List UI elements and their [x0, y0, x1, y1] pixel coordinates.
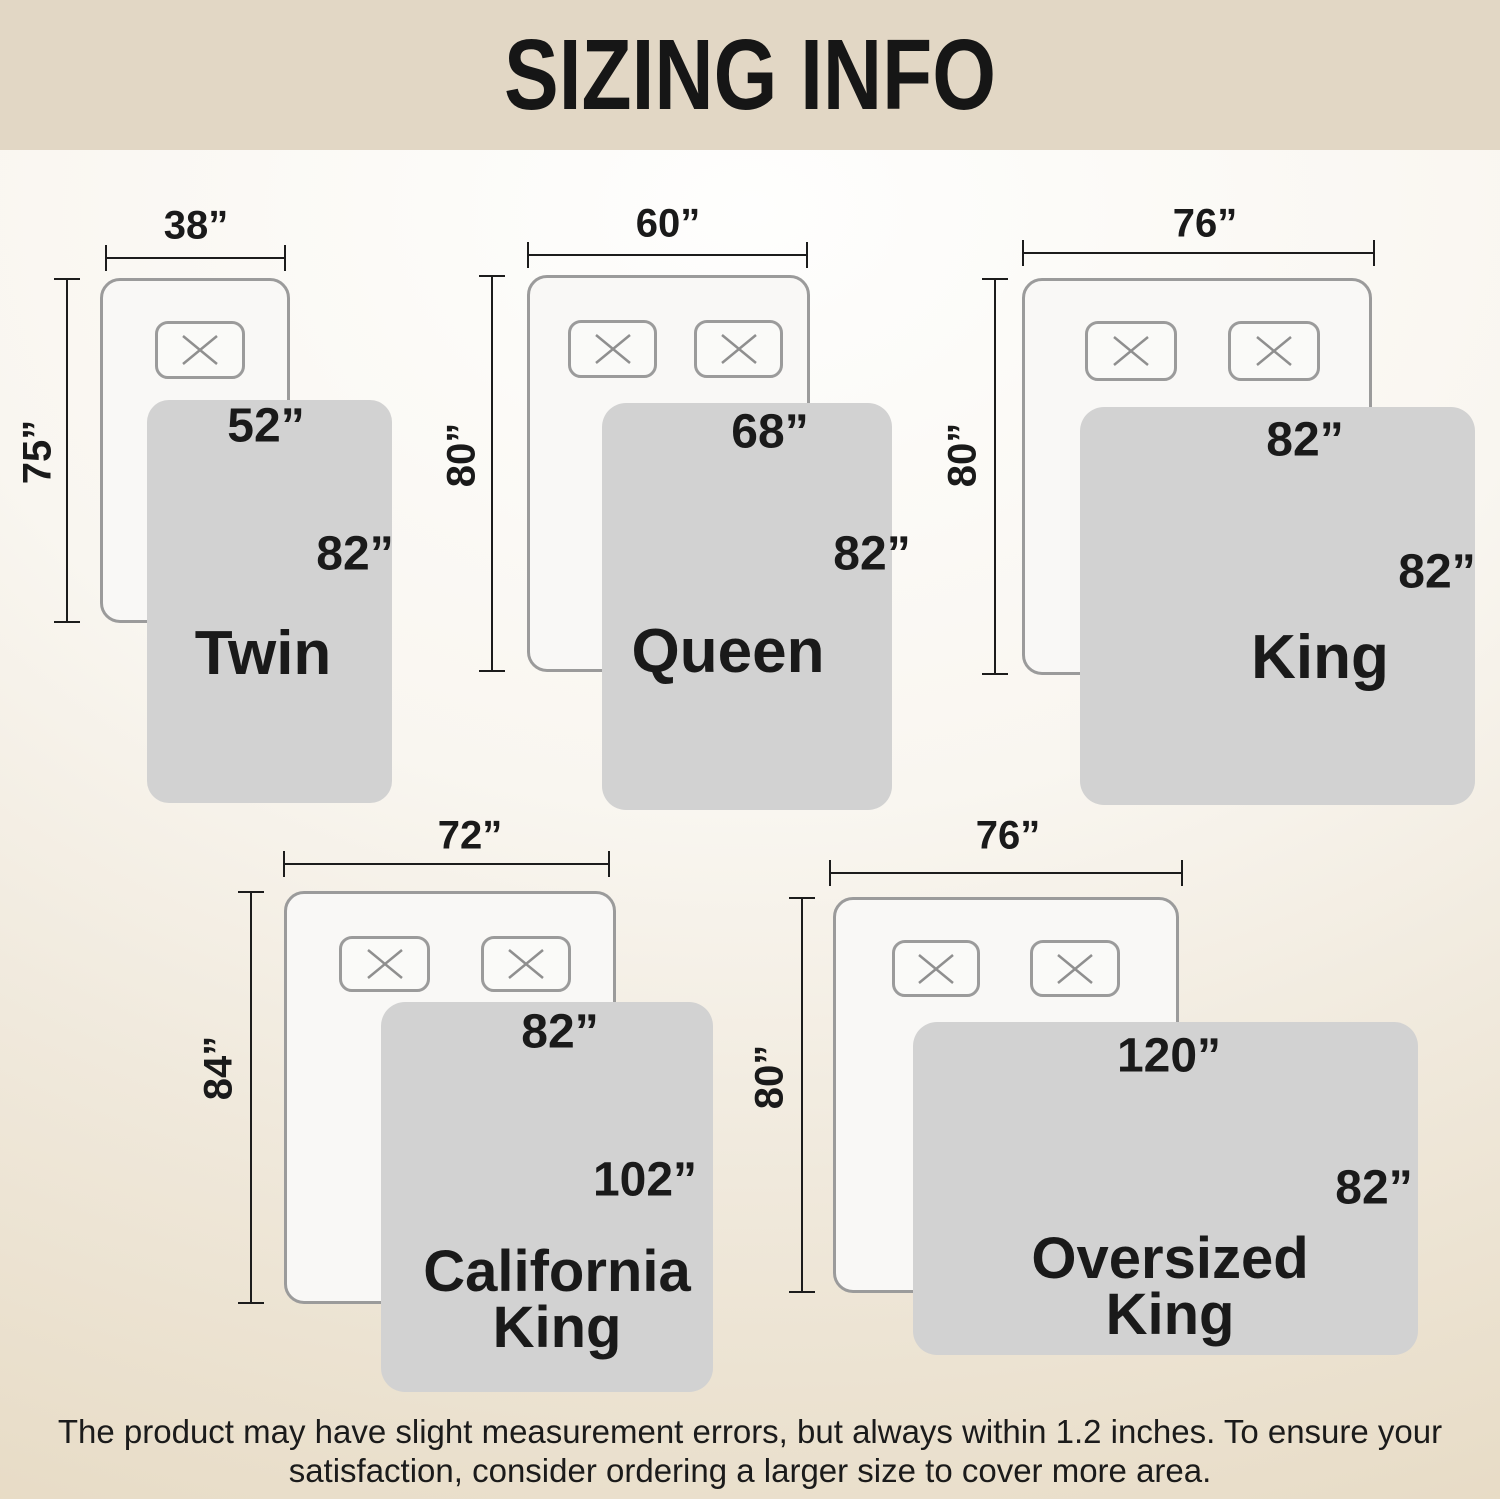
queen-pillow-left: [568, 320, 657, 378]
oversized-king-size-name: Oversized King: [1031, 1231, 1308, 1343]
oversized-king-pillow-left: [892, 940, 980, 997]
california-king-blanket-length-label: 102”: [593, 1153, 697, 1208]
california-king-pillow-left: [339, 936, 430, 992]
queen-blanket-length-label: 82”: [833, 527, 910, 582]
queen-blanket: [602, 403, 892, 810]
oversized-king-mattress-width-label: 76”: [976, 814, 1041, 859]
size-name-line: King: [493, 1295, 622, 1360]
california-king-mattress-width-label: 72”: [438, 814, 503, 859]
pillow-x-icon: [590, 331, 636, 367]
twin-blanket-length-label: 82”: [316, 527, 393, 582]
size-name-line: Queen: [632, 617, 825, 686]
page-title: SIZING INFO: [504, 18, 996, 133]
king-pillow-right: [1228, 321, 1320, 381]
oversized-king-length-dimension-line: [789, 897, 815, 1293]
disclaimer-line-2: satisfaction, consider ordering a larger…: [0, 1451, 1500, 1490]
king-mattress-length-label: 80”: [941, 423, 986, 488]
king-pillow-left: [1085, 321, 1177, 381]
king-blanket-length-label: 82”: [1398, 545, 1475, 600]
king-blanket-width-label: 82”: [1266, 413, 1343, 468]
sizing-info-infographic: SIZING INFO 38” 75” 52” 82” Twin 60” 80”: [0, 0, 1500, 1499]
size-name-line: King: [1251, 623, 1389, 692]
queen-size-name: Queen: [632, 624, 825, 680]
pillow-x-icon: [177, 332, 223, 368]
twin-size-name: Twin: [195, 626, 332, 682]
pillow-x-icon: [913, 951, 959, 987]
king-size-name: King: [1251, 630, 1389, 686]
california-king-blanket-width-label: 82”: [521, 1005, 598, 1060]
queen-blanket-width-label: 68”: [731, 405, 808, 460]
size-name-line: King: [1106, 1282, 1235, 1347]
twin-blanket: [147, 400, 392, 803]
twin-blanket-width-label: 52”: [227, 399, 304, 454]
pillow-x-icon: [503, 946, 549, 982]
queen-mattress-width-label: 60”: [636, 202, 701, 247]
king-mattress-width-label: 76”: [1173, 202, 1238, 247]
queen-mattress-length-label: 80”: [440, 423, 485, 488]
header-banner: SIZING INFO: [0, 0, 1500, 150]
pillow-x-icon: [716, 331, 762, 367]
disclaimer-line-1: The product may have slight measurement …: [0, 1412, 1500, 1451]
twin-pillow: [155, 321, 245, 379]
queen-pillow-right: [694, 320, 783, 378]
california-king-size-name: California King: [423, 1244, 691, 1356]
size-name-line: Twin: [195, 619, 332, 688]
pillow-x-icon: [1052, 951, 1098, 987]
oversized-king-blanket-length-label: 82”: [1335, 1161, 1412, 1216]
twin-mattress-length-label: 75”: [16, 420, 61, 485]
oversized-king-mattress-length-label: 80”: [748, 1045, 793, 1110]
disclaimer-text: The product may have slight measurement …: [0, 1412, 1500, 1490]
twin-width-dimension-line: [105, 245, 286, 271]
pillow-x-icon: [362, 946, 408, 982]
oversized-king-blanket-width-label: 120”: [1117, 1029, 1221, 1084]
pillow-x-icon: [1251, 333, 1297, 369]
california-king-pillow-right: [481, 936, 571, 992]
pillow-x-icon: [1108, 333, 1154, 369]
oversized-king-width-dimension-line: [829, 860, 1183, 886]
oversized-king-pillow-right: [1030, 940, 1120, 997]
california-king-length-dimension-line: [238, 891, 264, 1304]
twin-mattress-width-label: 38”: [164, 204, 229, 249]
california-king-mattress-length-label: 84”: [197, 1036, 242, 1101]
king-length-dimension-line: [982, 278, 1008, 675]
